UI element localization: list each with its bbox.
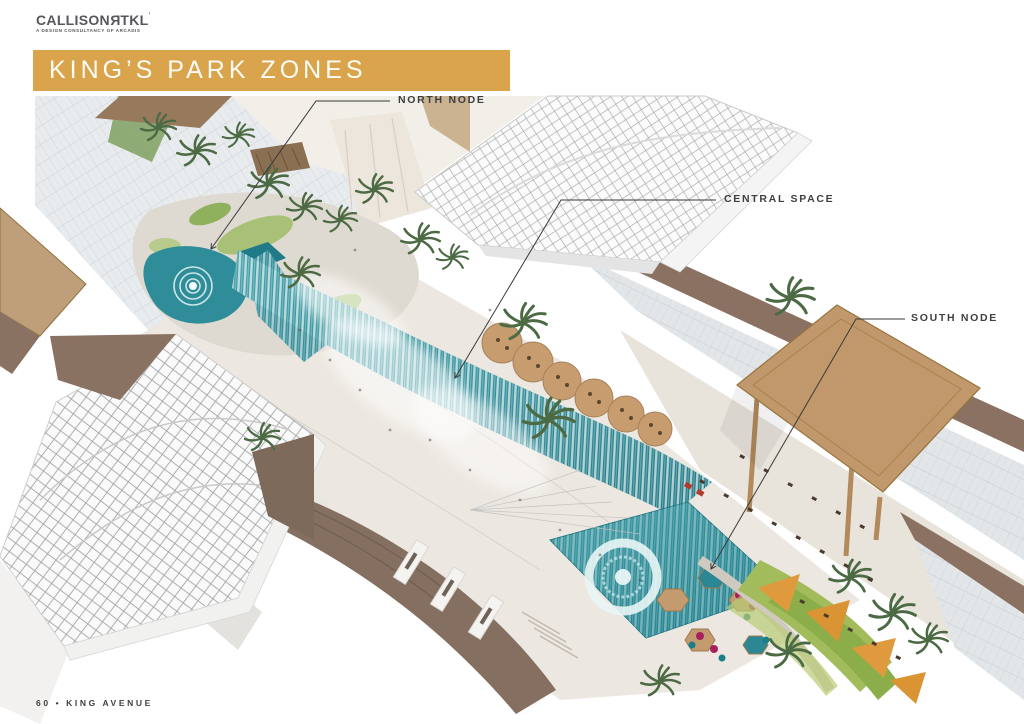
annotation-south-node: SOUTH NODE [911,312,998,324]
annotation-north-node: NORTH NODE [398,94,486,106]
page-footer: 60 • KING AVENUE [36,698,153,708]
annotation-central-space: CENTRAL SPACE [724,193,834,205]
site-rendering-canvas [0,0,1024,724]
site-rendering: NORTH NODE CENTRAL SPACE SOUTH NODE [0,0,1024,724]
document-page: CALLISONRTKL’ A DESIGN CONSULTANCY OF AR… [0,0,1024,724]
